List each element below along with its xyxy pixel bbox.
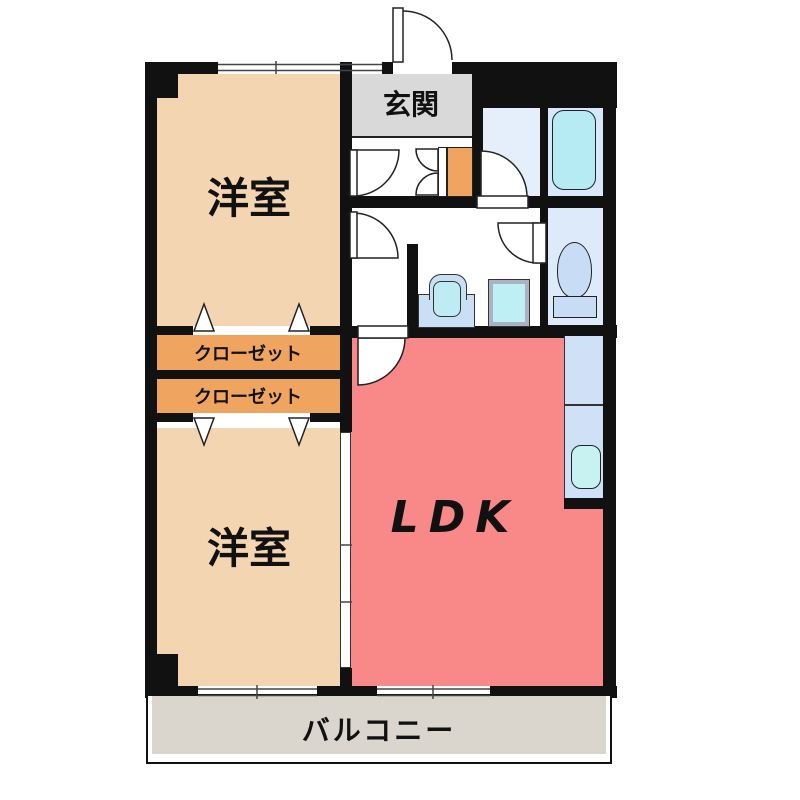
entrance-door-arc: [403, 11, 452, 60]
floor-plan: 玄関 洋室 クローゼット クローゼット 洋室 LDK バルコニー: [0, 0, 800, 800]
toilet-west-wall: [540, 206, 548, 336]
kitchen-counter-divider: [564, 404, 603, 406]
closet-1-label: クローゼット: [156, 334, 340, 371]
washing-machine-pan: [489, 280, 529, 326]
washbasin-sink: [433, 281, 461, 317]
ldk-label: LDK: [350, 490, 560, 545]
closet-2-label: クローゼット: [156, 378, 340, 414]
hall-stub-wall: [407, 244, 418, 328]
western-room-1-label: 洋室: [156, 150, 342, 240]
hallway-door-arc: [353, 213, 398, 258]
washroom-vestibule-floor: [478, 104, 544, 202]
toilet-door-arc: [498, 223, 538, 263]
kitchen-stub-wall: [564, 497, 604, 509]
entrance-label: 玄関: [350, 72, 472, 134]
western-room-2-label: 洋室: [156, 500, 342, 590]
toilet-bowl: [557, 242, 592, 298]
bath-divider-wall: [540, 104, 548, 198]
pipe-space-band: [472, 62, 617, 108]
toilet-tank: [553, 296, 597, 318]
entrance-door-leaf: [393, 8, 403, 62]
pillar-bottom-left: [145, 654, 178, 698]
shoe-cabinet-door-arc-bottom: [416, 173, 438, 195]
entrance-right-wall: [472, 62, 483, 205]
shoe-cabinet-door-arc-top: [416, 149, 438, 171]
balcony-label: バルコニー: [146, 706, 612, 752]
kitchen-sink: [571, 445, 601, 489]
bathtub: [552, 110, 596, 190]
right-wall: [603, 62, 616, 698]
hall-horizontal-wall: [340, 196, 604, 208]
western-room-1-door-arc: [353, 150, 399, 196]
pillar-top-left: [145, 62, 178, 98]
shoe-cabinet-door: [438, 147, 447, 197]
shoe-cabinet: [447, 147, 473, 197]
closet-2-doorway: [193, 413, 310, 422]
